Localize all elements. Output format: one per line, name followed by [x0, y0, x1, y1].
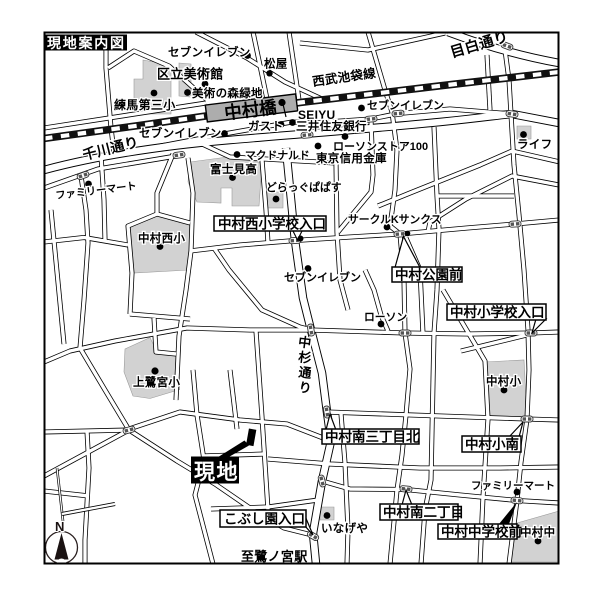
svg-text:り: り: [298, 380, 313, 397]
svg-text:中村西小学校入口: 中村西小学校入口: [218, 216, 326, 232]
svg-text:上鷺宮小: 上鷺宮小: [133, 375, 180, 389]
svg-text:東京信用金庫: 東京信用金庫: [316, 151, 387, 165]
svg-text:中村小学校入口: 中村小学校入口: [450, 304, 545, 320]
svg-text:三井住友銀行: 三井住友銀行: [296, 119, 367, 133]
svg-text:中村中: 中村中: [520, 525, 555, 539]
svg-text:ライフ: ライフ: [517, 138, 552, 151]
svg-text:現地: 現地: [194, 460, 239, 484]
svg-text:現地案内図: 現地案内図: [47, 35, 124, 51]
svg-text:ファミリーマート: ファミリーマート: [471, 480, 555, 492]
svg-text:練馬第三小: 練馬第三小: [114, 97, 176, 112]
svg-text:中村南三丁目北: 中村南三丁目北: [325, 429, 420, 445]
svg-text:中村小: 中村小: [486, 374, 522, 388]
svg-text:いなげや: いなげや: [321, 521, 368, 535]
svg-text:美術の森緑地: 美術の森緑地: [192, 86, 263, 100]
svg-text:中村南二丁目: 中村南二丁目: [383, 504, 464, 520]
svg-text:セブンイレブン: セブンイレブン: [284, 270, 361, 284]
svg-text:中村西小: 中村西小: [138, 231, 185, 245]
svg-text:SEIYU: SEIYU: [298, 108, 336, 122]
svg-text:松屋: 松屋: [264, 57, 288, 71]
svg-text:サークルKサンクス: サークルKサンクス: [348, 213, 442, 226]
svg-text:通: 通: [298, 364, 313, 381]
svg-text:マクドナルド: マクドナルド: [245, 149, 310, 162]
svg-text:N: N: [55, 519, 64, 534]
svg-text:中: 中: [297, 334, 312, 351]
svg-text:富士見高: 富士見高: [210, 162, 257, 176]
svg-text:こぶし園入口: こぶし園入口: [224, 512, 305, 527]
svg-text:セブンイレブン: セブンイレブン: [139, 126, 222, 140]
svg-text:ガスト: ガスト: [248, 119, 283, 133]
svg-text:どらっぐぱぱす: どらっぐぱぱす: [266, 180, 342, 194]
svg-text:ローソンストア100: ローソンストア100: [333, 140, 428, 153]
svg-text:区立美術館: 区立美術館: [157, 67, 224, 82]
svg-text:セブンイレブン: セブンイレブン: [367, 98, 444, 112]
svg-text:中村公園前: 中村公園前: [395, 267, 463, 283]
svg-text:ローソン: ローソン: [364, 312, 407, 324]
svg-text:至鷺ノ宮駅: 至鷺ノ宮駅: [241, 549, 308, 564]
svg-text:中村小南: 中村小南: [465, 436, 519, 452]
svg-text:杉: 杉: [298, 349, 313, 366]
svg-text:セブンイレブン: セブンイレブン: [168, 45, 251, 59]
svg-text:中村中学校前: 中村中学校前: [441, 524, 522, 540]
